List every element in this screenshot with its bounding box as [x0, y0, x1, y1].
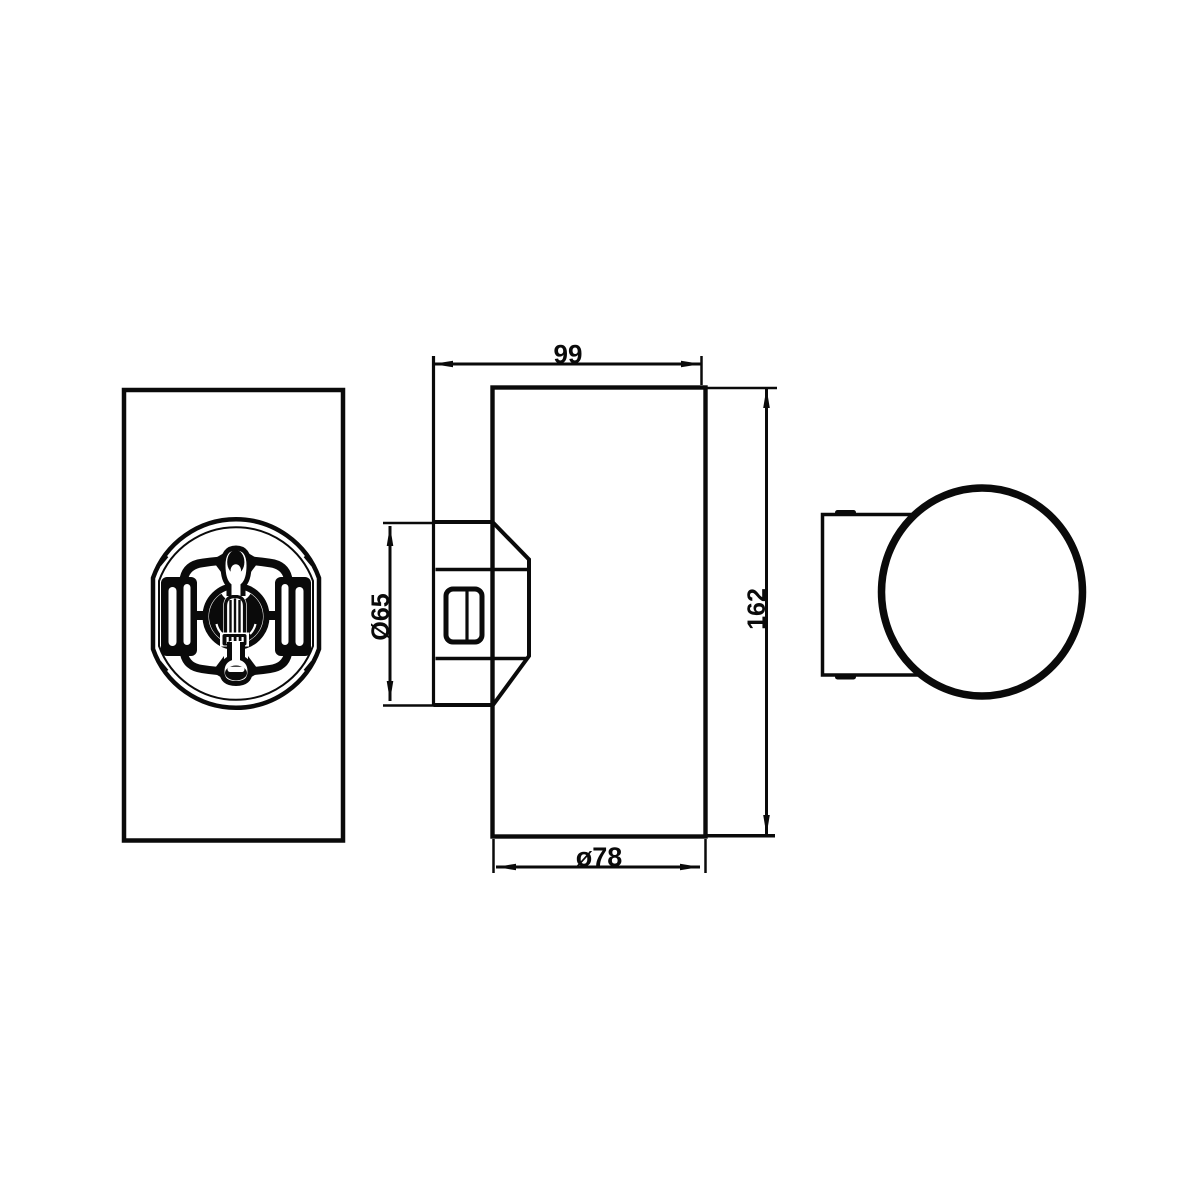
svg-text:Ø65: Ø65 — [367, 593, 395, 640]
svg-text:162: 162 — [743, 588, 771, 630]
svg-text:ø78: ø78 — [576, 842, 623, 872]
svg-text:99: 99 — [554, 339, 583, 369]
